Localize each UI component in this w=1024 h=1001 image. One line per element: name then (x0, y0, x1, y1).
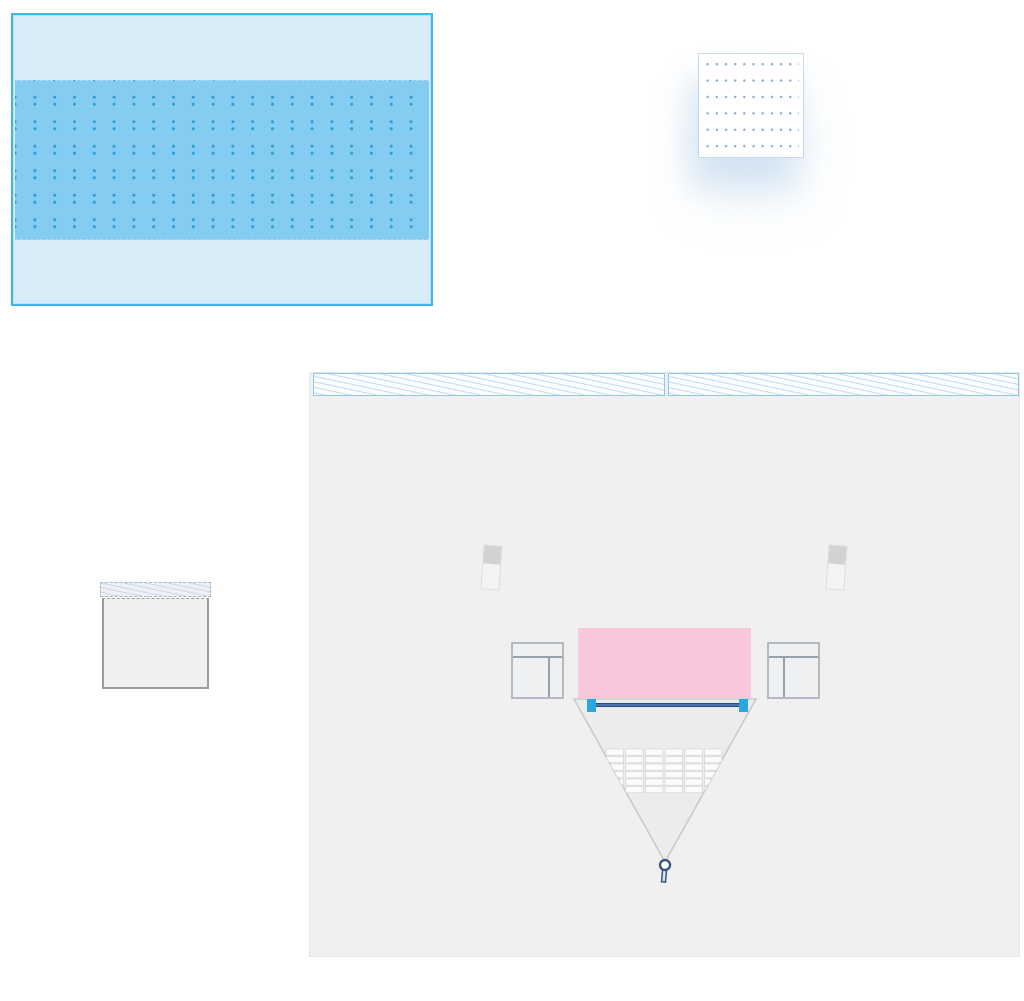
seat-cell (626, 787, 644, 793)
stage-area[interactable] (309, 372, 1020, 957)
pin-head-icon (660, 860, 671, 871)
seat-cell (685, 779, 703, 785)
layout-canvas (0, 0, 1024, 1001)
seat-cell (685, 764, 703, 770)
seat-cell (626, 772, 644, 778)
seat-cell (705, 757, 723, 763)
seat-cell (606, 787, 624, 793)
seat-cell (645, 787, 663, 793)
seat-cell (685, 787, 703, 793)
seat-cell (665, 772, 683, 778)
seat-cell (685, 757, 703, 763)
net-cap-left[interactable] (587, 699, 596, 712)
seat-cell (606, 749, 624, 755)
seat-cell (645, 757, 663, 763)
seat-cell (626, 764, 644, 770)
dotted-panel[interactable] (698, 53, 804, 158)
net-cap-right[interactable] (739, 699, 748, 712)
equipment-hatch-band[interactable] (100, 582, 211, 597)
seat-cell (645, 749, 663, 755)
seat-cell (685, 749, 703, 755)
seat-cell (606, 764, 624, 770)
funnel-group[interactable] (310, 373, 1021, 958)
seat-cell (626, 757, 644, 763)
seat-cell (665, 764, 683, 770)
seat-cell (645, 779, 663, 785)
pool-perforated-band (15, 80, 429, 240)
pool-panel[interactable] (11, 13, 433, 306)
equipment-block[interactable] (102, 598, 209, 689)
seat-cell (645, 772, 663, 778)
seat-cell (705, 749, 723, 755)
seat-cell (705, 779, 723, 785)
seat-cell (626, 749, 644, 755)
seat-cell (665, 749, 683, 755)
seat-cell (685, 772, 703, 778)
seat-cell (645, 764, 663, 770)
pin-marker[interactable] (659, 860, 671, 883)
seat-cell (665, 779, 683, 785)
seat-cell (626, 779, 644, 785)
seat-cell (665, 757, 683, 763)
seat-cell (665, 787, 683, 793)
